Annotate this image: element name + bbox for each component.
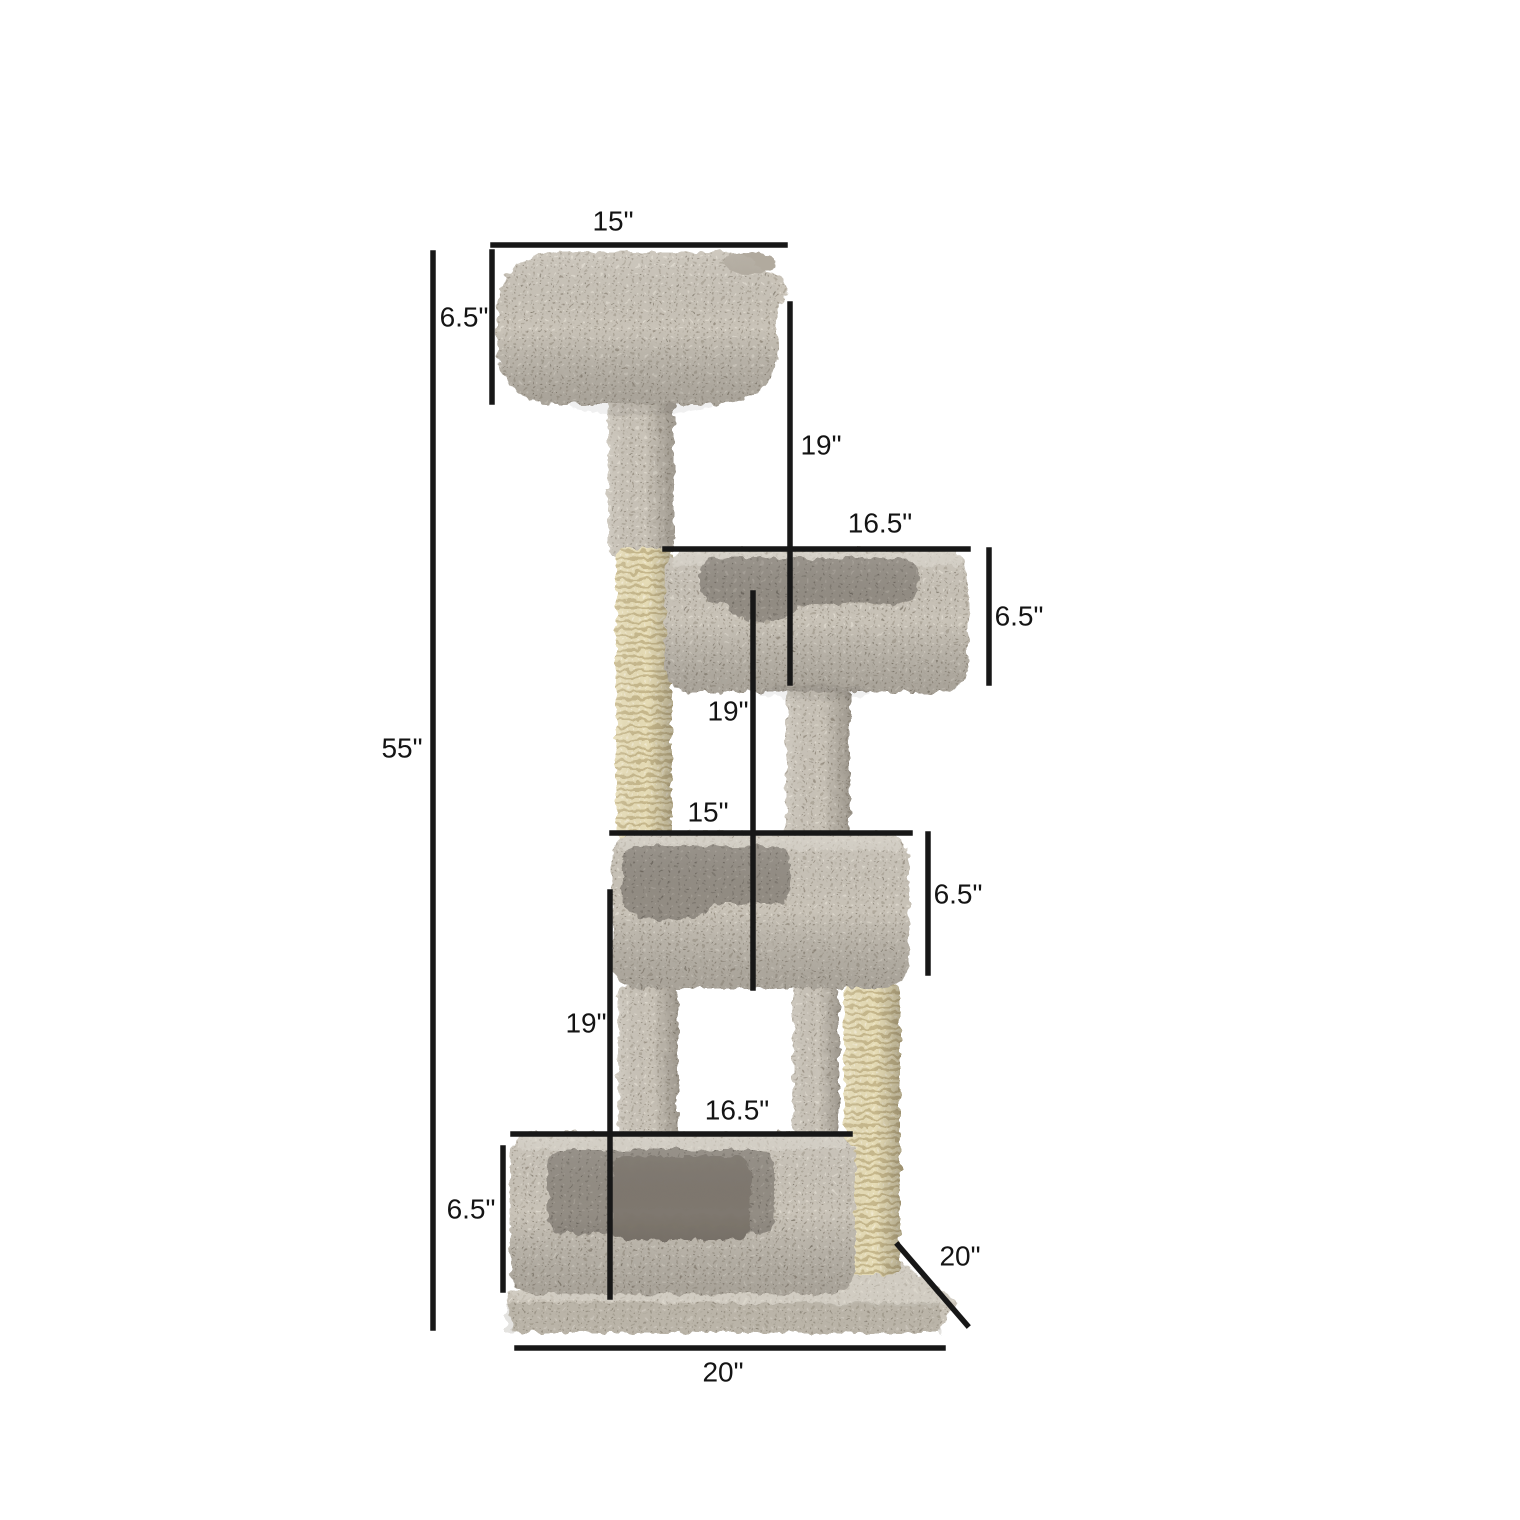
dim-label-third-bed-width: 15" [687, 798, 728, 829]
second-bed [665, 548, 968, 692]
dim-label-base-depth: 20" [939, 1242, 980, 1273]
middle-post [786, 688, 850, 838]
dim-label-third-bed-depth: 6.5" [934, 880, 983, 911]
dim-label-middle-post-drop: 19" [707, 697, 748, 728]
top-bed-post [608, 396, 674, 556]
cat-tree-illustration [497, 252, 968, 1333]
cat-tree-figure [0, 0, 1520, 1520]
product-dimension-diagram: 55" 15" 6.5" 19" 16.5" 6.5" 19" 15" 6.5"… [0, 0, 1520, 1520]
dim-label-upper-post-drop: 19" [800, 431, 841, 462]
top-bed [497, 252, 787, 415]
dim-label-top-bed-depth: 6.5" [440, 303, 489, 334]
lower-right-post [793, 985, 839, 1135]
dim-label-base-width: 20" [702, 1358, 743, 1389]
dim-label-total-height: 55" [381, 734, 422, 765]
dim-label-bottom-bed-width: 16.5" [705, 1096, 769, 1127]
dim-label-top-bed-width: 15" [592, 207, 633, 238]
dim-label-bottom-bed-depth: 6.5" [447, 1195, 496, 1226]
dim-label-lower-post-drop: 19" [565, 1009, 606, 1040]
upper-sisal-post [616, 548, 672, 838]
bottom-bed [510, 1132, 855, 1294]
dim-label-second-bed-width: 16.5" [848, 509, 912, 540]
lower-left-post [618, 985, 678, 1140]
dim-label-second-bed-depth: 6.5" [995, 602, 1044, 633]
